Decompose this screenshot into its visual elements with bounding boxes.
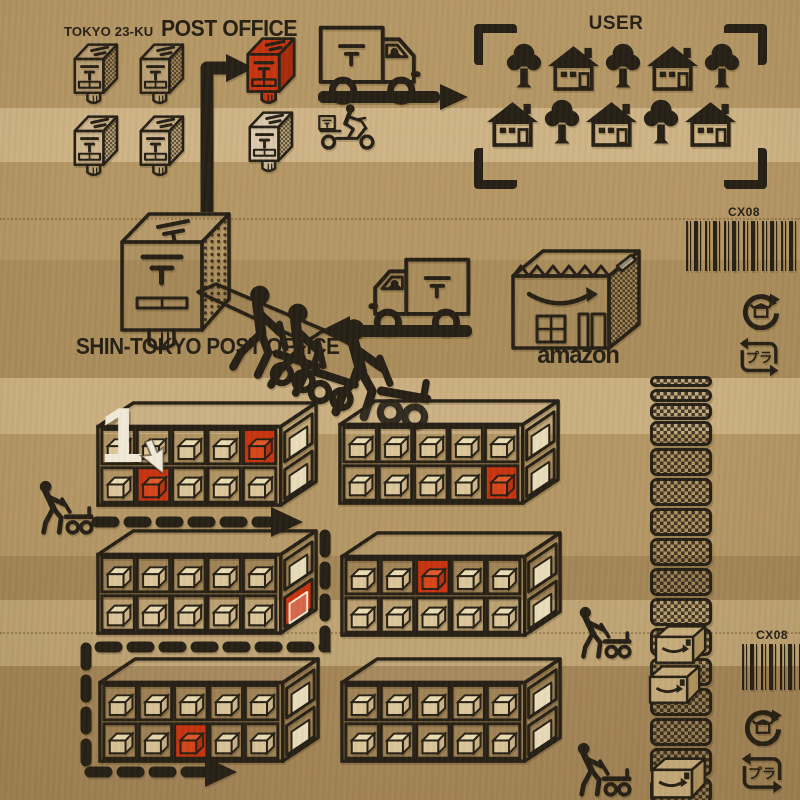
stack-slat [650, 718, 712, 746]
house-icon [684, 98, 737, 150]
amazon-label: amazon [515, 341, 640, 370]
stack-slat [650, 508, 712, 536]
cart-person-icon [574, 606, 634, 662]
tree-icon [542, 97, 582, 150]
shin-tokyo-label: SHIN-TOKYO POST OFFICE [76, 333, 339, 360]
tree-icon [603, 41, 643, 94]
amazon-warehouse-icon [505, 242, 650, 354]
house-icon [585, 98, 638, 150]
house-icon [646, 42, 699, 94]
parcel-stack [650, 376, 712, 800]
tree-icon [504, 41, 544, 94]
stack-slat [650, 403, 712, 420]
mail-truck-left-icon [355, 248, 473, 345]
tree-icon [702, 41, 742, 94]
cardboard-poster: TOKYO 23-KU POST OFFICE USER [0, 0, 800, 800]
plastic-recycle-icon: プラ [738, 337, 780, 377]
stack-slat [650, 421, 712, 446]
stack-slat [650, 478, 712, 506]
red-postbox-icon [240, 34, 300, 110]
house-icon [486, 98, 539, 150]
amazon-box-icon [646, 662, 704, 708]
amazon-box-icon [648, 754, 710, 800]
house-icon [547, 42, 600, 94]
stack-slat [650, 389, 712, 402]
frame-corner-icon [724, 148, 767, 189]
postbox-icon [134, 112, 188, 182]
postbox-icon [68, 40, 122, 110]
white-postbox-icon [243, 108, 297, 178]
stack-slat [650, 448, 712, 476]
barcode-label: CX08 [700, 205, 788, 219]
user-grid [486, 38, 754, 150]
barcode [742, 644, 800, 690]
stack-slat [650, 376, 712, 387]
postbox-icon [68, 112, 122, 182]
frame-corner-icon [474, 148, 517, 189]
mouse-cursor-icon [130, 432, 166, 474]
stack-slat [650, 538, 712, 566]
shelf-art [336, 398, 562, 510]
stack-slat [650, 568, 712, 596]
plastic-recycle-icon: プラ [740, 752, 784, 794]
cart-person-icon [34, 478, 96, 540]
tree-icon [641, 97, 681, 150]
locker-shelf-2 [336, 398, 562, 510]
delivery-scooter-icon [318, 100, 380, 152]
plastic-mark-text: プラ [748, 766, 776, 782]
cardboard-recycle-icon [744, 708, 782, 746]
postbox-icon [134, 40, 188, 110]
cart-person-icon [572, 742, 634, 800]
barcode [686, 221, 798, 271]
barcode-label: CX08 [756, 628, 800, 642]
tokyo-23ku-label: TOKYO 23-KU [64, 24, 153, 39]
cardboard-recycle-icon [742, 292, 780, 330]
picking-route-dashed-arrow [55, 495, 385, 795]
plastic-mark-text: プラ [746, 350, 773, 365]
